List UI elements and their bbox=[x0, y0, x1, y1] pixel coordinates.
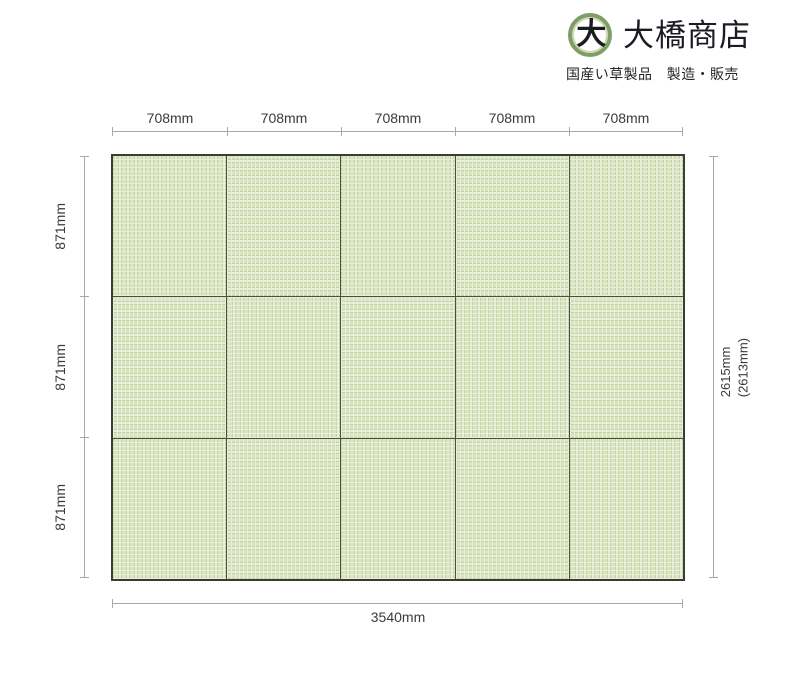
top-dimension-tick bbox=[455, 127, 456, 136]
top-dimension-tick bbox=[569, 127, 570, 136]
bottom-dimension-label: 3540mm bbox=[113, 609, 683, 625]
tatami-mat bbox=[341, 439, 454, 579]
top-dimension-label: 708mm bbox=[227, 110, 341, 128]
bottom-dimension-tick bbox=[682, 599, 683, 608]
top-dimension-tick bbox=[227, 127, 228, 136]
logo-kanji: 大 bbox=[576, 20, 606, 50]
right-dimension-line bbox=[713, 156, 714, 578]
tatami-grid bbox=[111, 154, 685, 581]
tatami-mat bbox=[570, 156, 683, 296]
tatami-mat bbox=[113, 297, 226, 437]
left-dimension-tick bbox=[80, 577, 89, 578]
left-dimension-tick bbox=[80, 156, 89, 157]
right-dimension-label: 2615mm(2613mm) bbox=[717, 338, 752, 397]
company-name: 大橋商店 bbox=[623, 20, 751, 51]
left-dimension-label: 871mm bbox=[52, 203, 68, 250]
tatami-mat bbox=[341, 297, 454, 437]
top-dimension-line bbox=[113, 131, 683, 132]
tatami-mat bbox=[227, 156, 340, 296]
bottom-dimension-tick bbox=[112, 599, 113, 608]
logo: 大 大橋商店 bbox=[568, 13, 778, 57]
left-dimension-label-wrap: 871mm bbox=[46, 437, 74, 578]
top-dimension-labels: 708mm 708mm 708mm 708mm 708mm bbox=[113, 110, 683, 128]
top-dimension-label: 708mm bbox=[341, 110, 455, 128]
tatami-mat bbox=[113, 439, 226, 579]
top-dimension-label: 708mm bbox=[569, 110, 683, 128]
left-dimension-tick bbox=[80, 296, 89, 297]
right-dimension-tick bbox=[709, 577, 718, 578]
tatami-mat bbox=[227, 439, 340, 579]
tatami-mat bbox=[456, 297, 569, 437]
right-dimension-label-wrap: 2615mm(2613mm) bbox=[716, 280, 754, 455]
tatami-mat bbox=[570, 297, 683, 437]
top-dimension-label: 708mm bbox=[455, 110, 569, 128]
top-dimension-tick bbox=[112, 127, 113, 136]
left-dimension-label-wrap: 871mm bbox=[46, 297, 74, 438]
bottom-dimension-line bbox=[113, 603, 683, 604]
left-dimension-label-wrap: 871mm bbox=[46, 156, 74, 297]
left-dimension-tick bbox=[80, 437, 89, 438]
tatami-mat bbox=[227, 297, 340, 437]
left-dimension-line bbox=[84, 156, 85, 578]
tatami-mat bbox=[570, 439, 683, 579]
header: 大 大橋商店 国産い草製品 製造・販売 bbox=[568, 13, 778, 84]
company-tagline: 国産い草製品 製造・販売 bbox=[566, 64, 778, 84]
left-dimension-label: 871mm bbox=[52, 344, 68, 391]
left-dimension-label: 871mm bbox=[52, 484, 68, 531]
tatami-mat bbox=[341, 156, 454, 296]
top-dimension-tick bbox=[682, 127, 683, 136]
logo-circle-icon: 大 bbox=[568, 13, 612, 57]
tatami-mat bbox=[113, 156, 226, 296]
top-dimension-label: 708mm bbox=[113, 110, 227, 128]
right-dimension-tick bbox=[709, 156, 718, 157]
top-dimension-tick bbox=[341, 127, 342, 136]
tatami-mat bbox=[456, 439, 569, 579]
tatami-mat bbox=[456, 156, 569, 296]
